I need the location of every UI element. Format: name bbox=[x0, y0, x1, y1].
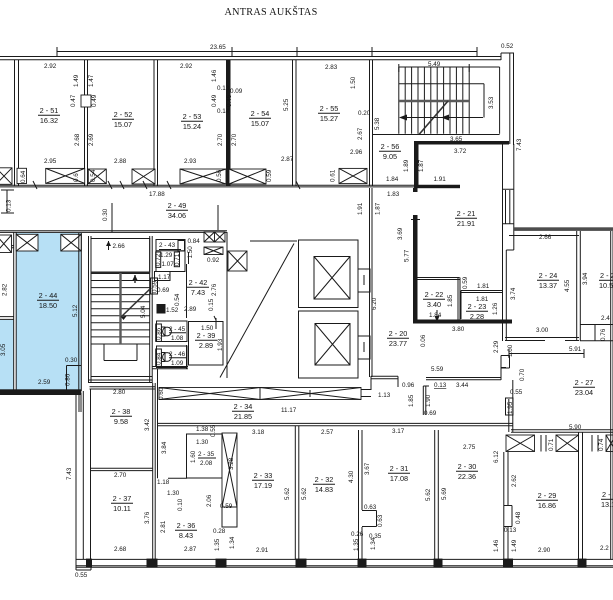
svg-text:0.55: 0.55 bbox=[75, 572, 88, 579]
svg-text:3.40: 3.40 bbox=[427, 300, 441, 309]
svg-text:2.92: 2.92 bbox=[44, 63, 57, 70]
svg-text:16.32: 16.32 bbox=[40, 116, 58, 125]
svg-text:2.66: 2.66 bbox=[539, 234, 552, 241]
svg-text:2 - 38: 2 - 38 bbox=[112, 407, 131, 416]
svg-text:2 - 20: 2 - 20 bbox=[389, 329, 408, 338]
svg-text:1.30: 1.30 bbox=[167, 490, 180, 497]
svg-text:2 - 22: 2 - 22 bbox=[425, 290, 444, 299]
svg-text:0.63: 0.63 bbox=[364, 504, 377, 511]
svg-text:4.30: 4.30 bbox=[348, 470, 355, 483]
svg-text:1.91: 1.91 bbox=[357, 202, 364, 215]
svg-text:0.61: 0.61 bbox=[330, 169, 337, 182]
svg-text:2.70: 2.70 bbox=[217, 133, 224, 146]
svg-text:0.92: 0.92 bbox=[207, 257, 220, 264]
svg-text:5.62: 5.62 bbox=[425, 488, 432, 501]
svg-text:0.6: 0.6 bbox=[73, 173, 80, 182]
svg-text:2.80: 2.80 bbox=[113, 389, 126, 396]
svg-text:3.80: 3.80 bbox=[452, 326, 465, 333]
svg-text:2 - 53: 2 - 53 bbox=[183, 112, 202, 121]
svg-text:1.34: 1.34 bbox=[229, 536, 236, 549]
svg-text:0.64: 0.64 bbox=[20, 170, 27, 183]
svg-text:0.59: 0.59 bbox=[220, 503, 233, 510]
svg-text:0.76: 0.76 bbox=[600, 328, 607, 341]
svg-text:0.30: 0.30 bbox=[102, 208, 109, 221]
svg-text:0.84: 0.84 bbox=[156, 352, 163, 365]
svg-text:0.49: 0.49 bbox=[91, 94, 98, 107]
svg-text:2.70: 2.70 bbox=[231, 133, 238, 146]
svg-text:15.07: 15.07 bbox=[251, 119, 269, 128]
svg-text:1.49: 1.49 bbox=[73, 74, 80, 87]
svg-text:0.06: 0.06 bbox=[420, 334, 427, 347]
svg-text:3.44: 3.44 bbox=[456, 382, 469, 389]
svg-text:2.06: 2.06 bbox=[206, 494, 213, 507]
svg-text:0.14: 0.14 bbox=[217, 108, 230, 115]
svg-text:5.90: 5.90 bbox=[569, 424, 582, 431]
svg-text:3.53: 3.53 bbox=[488, 96, 495, 109]
svg-text:0.96: 0.96 bbox=[402, 382, 415, 389]
svg-text:0.63: 0.63 bbox=[377, 514, 384, 527]
svg-text:4.55: 4.55 bbox=[564, 279, 571, 292]
svg-text:0.59: 0.59 bbox=[462, 276, 469, 289]
svg-text:2 - 24: 2 - 24 bbox=[539, 271, 558, 280]
svg-text:1.09: 1.09 bbox=[171, 360, 184, 367]
svg-text:2.62: 2.62 bbox=[511, 474, 518, 487]
svg-text:2.08: 2.08 bbox=[200, 460, 213, 467]
svg-text:0.13: 0.13 bbox=[434, 382, 447, 389]
svg-text:17.19: 17.19 bbox=[254, 481, 272, 490]
svg-text:0.71: 0.71 bbox=[174, 253, 181, 266]
svg-text:2.96: 2.96 bbox=[350, 149, 363, 156]
svg-text:15.07: 15.07 bbox=[114, 120, 132, 129]
svg-text:2 - 37: 2 - 37 bbox=[113, 494, 132, 503]
svg-text:2 - 30: 2 - 30 bbox=[458, 462, 477, 471]
svg-text:2.66: 2.66 bbox=[113, 243, 126, 250]
svg-text:1.08: 1.08 bbox=[171, 335, 184, 342]
svg-text:0.86: 0.86 bbox=[65, 373, 72, 386]
svg-text:5.38: 5.38 bbox=[374, 117, 381, 130]
svg-text:2 - 36: 2 - 36 bbox=[177, 521, 196, 530]
svg-text:1.93: 1.93 bbox=[217, 338, 224, 351]
svg-text:2.95: 2.95 bbox=[44, 158, 57, 165]
svg-text:2 - 32: 2 - 32 bbox=[315, 475, 334, 484]
svg-text:0.45: 0.45 bbox=[226, 94, 233, 107]
svg-text:0.13: 0.13 bbox=[504, 527, 517, 534]
svg-text:3.18: 3.18 bbox=[252, 429, 265, 436]
svg-text:2.4: 2.4 bbox=[601, 315, 610, 322]
svg-text:1.83: 1.83 bbox=[387, 191, 400, 198]
svg-text:2 - 49: 2 - 49 bbox=[168, 201, 187, 210]
svg-text:3.28: 3.28 bbox=[228, 457, 235, 470]
svg-text:2.87: 2.87 bbox=[184, 546, 197, 553]
svg-text:1.85: 1.85 bbox=[447, 294, 454, 307]
svg-text:0.13: 0.13 bbox=[217, 85, 230, 92]
svg-text:2 - 44: 2 - 44 bbox=[39, 291, 58, 300]
svg-text:34.06: 34.06 bbox=[168, 211, 186, 220]
svg-text:3.76: 3.76 bbox=[144, 511, 151, 524]
svg-text:2 - 33: 2 - 33 bbox=[254, 471, 273, 480]
svg-text:0.69: 0.69 bbox=[157, 287, 170, 294]
svg-text:2 - 42: 2 - 42 bbox=[189, 278, 208, 287]
svg-text:0.26: 0.26 bbox=[351, 531, 364, 538]
svg-text:2 - 35: 2 - 35 bbox=[198, 451, 215, 458]
svg-text:2 - 51: 2 - 51 bbox=[40, 106, 59, 115]
svg-text:7.43: 7.43 bbox=[516, 138, 523, 151]
svg-text:1.90: 1.90 bbox=[425, 394, 432, 407]
svg-text:2 - 43: 2 - 43 bbox=[159, 242, 176, 249]
svg-text:3.67: 3.67 bbox=[364, 462, 371, 475]
svg-text:0.69: 0.69 bbox=[424, 410, 437, 417]
svg-text:1.18: 1.18 bbox=[157, 479, 170, 486]
svg-text:2 - 54: 2 - 54 bbox=[251, 109, 270, 118]
svg-text:21.91: 21.91 bbox=[457, 219, 475, 228]
svg-text:5.25: 5.25 bbox=[283, 98, 290, 111]
svg-text:1.38: 1.38 bbox=[196, 426, 209, 433]
svg-text:3.84: 3.84 bbox=[161, 441, 168, 454]
svg-text:2.68: 2.68 bbox=[114, 546, 127, 553]
svg-text:0.15: 0.15 bbox=[208, 298, 215, 311]
svg-text:2.83: 2.83 bbox=[325, 64, 338, 71]
svg-text:2.92: 2.92 bbox=[180, 63, 193, 70]
svg-text:0.56: 0.56 bbox=[216, 169, 223, 182]
svg-text:2.93: 2.93 bbox=[184, 158, 197, 165]
svg-text:0.74: 0.74 bbox=[598, 438, 605, 451]
svg-text:2 - 39: 2 - 39 bbox=[197, 331, 216, 340]
svg-text:13.37: 13.37 bbox=[539, 281, 557, 290]
svg-text:3.69: 3.69 bbox=[397, 227, 404, 240]
svg-text:3.94: 3.94 bbox=[582, 272, 589, 285]
svg-text:1.60: 1.60 bbox=[190, 450, 197, 463]
svg-text:3.72: 3.72 bbox=[454, 148, 467, 155]
svg-text:2.90: 2.90 bbox=[538, 547, 551, 554]
svg-text:1.52: 1.52 bbox=[166, 307, 179, 314]
svg-text:3.00: 3.00 bbox=[536, 327, 549, 334]
svg-text:0.09: 0.09 bbox=[230, 88, 243, 95]
svg-text:9.58: 9.58 bbox=[114, 417, 128, 426]
svg-text:1.87: 1.87 bbox=[375, 202, 382, 215]
svg-text:10.11: 10.11 bbox=[113, 504, 131, 513]
svg-text:2.76: 2.76 bbox=[211, 283, 218, 296]
svg-text:15.27: 15.27 bbox=[320, 114, 338, 123]
svg-text:2.82: 2.82 bbox=[2, 283, 9, 296]
svg-text:3.42: 3.42 bbox=[144, 418, 151, 431]
svg-text:0.71: 0.71 bbox=[548, 438, 555, 451]
svg-text:1.34: 1.34 bbox=[370, 537, 377, 550]
svg-text:2.2: 2.2 bbox=[600, 545, 609, 552]
svg-text:0.59: 0.59 bbox=[266, 169, 273, 182]
svg-text:0.10: 0.10 bbox=[177, 498, 184, 511]
svg-text:1.07: 1.07 bbox=[162, 261, 175, 268]
svg-text:2 - 2: 2 - 2 bbox=[602, 490, 613, 499]
svg-text:2.70: 2.70 bbox=[114, 472, 127, 479]
svg-text:2.87: 2.87 bbox=[281, 156, 294, 163]
svg-text:2.89: 2.89 bbox=[184, 306, 197, 313]
svg-text:2.67: 2.67 bbox=[357, 127, 364, 140]
svg-text:5.77: 5.77 bbox=[404, 249, 411, 262]
svg-text:0.54: 0.54 bbox=[90, 169, 97, 182]
svg-text:2.57: 2.57 bbox=[321, 429, 334, 436]
svg-text:0.49: 0.49 bbox=[211, 94, 218, 107]
svg-text:5.62: 5.62 bbox=[284, 487, 291, 500]
svg-text:23.77: 23.77 bbox=[389, 339, 407, 348]
svg-text:0.84: 0.84 bbox=[188, 238, 201, 245]
svg-text:1.47: 1.47 bbox=[88, 74, 95, 87]
svg-text:1.89: 1.89 bbox=[403, 159, 410, 172]
svg-text:1.35: 1.35 bbox=[214, 538, 221, 551]
svg-text:2.89: 2.89 bbox=[199, 341, 213, 350]
svg-text:7.43: 7.43 bbox=[66, 467, 73, 480]
svg-text:14.83: 14.83 bbox=[315, 485, 333, 494]
svg-text:0.28: 0.28 bbox=[213, 528, 226, 535]
svg-text:0.54: 0.54 bbox=[174, 293, 181, 306]
svg-text:17.08: 17.08 bbox=[390, 474, 408, 483]
svg-text:1.46: 1.46 bbox=[211, 69, 218, 82]
svg-text:2 - 29: 2 - 29 bbox=[538, 491, 557, 500]
svg-text:17.88: 17.88 bbox=[149, 191, 165, 198]
svg-text:0.13: 0.13 bbox=[6, 199, 13, 212]
svg-text:2 - 56: 2 - 56 bbox=[381, 142, 400, 151]
svg-text:3.74: 3.74 bbox=[510, 287, 517, 300]
svg-text:0.20: 0.20 bbox=[358, 110, 371, 117]
svg-text:6.12: 6.12 bbox=[493, 450, 500, 463]
svg-text:11.17: 11.17 bbox=[281, 407, 297, 414]
svg-text:1.87: 1.87 bbox=[418, 159, 425, 172]
svg-text:1.50: 1.50 bbox=[350, 76, 357, 89]
svg-text:0.30: 0.30 bbox=[65, 357, 78, 364]
svg-text:23.04: 23.04 bbox=[575, 388, 593, 397]
svg-text:5.04: 5.04 bbox=[140, 305, 147, 318]
svg-text:2.69: 2.69 bbox=[88, 133, 95, 146]
svg-text:2.75: 2.75 bbox=[463, 444, 476, 451]
svg-text:3.05: 3.05 bbox=[0, 343, 7, 356]
svg-text:2.91: 2.91 bbox=[256, 547, 269, 554]
svg-text:0.86: 0.86 bbox=[156, 327, 163, 340]
svg-text:0.47: 0.47 bbox=[70, 94, 77, 107]
svg-text:2.88: 2.88 bbox=[114, 158, 127, 165]
svg-text:0.55: 0.55 bbox=[210, 424, 217, 437]
svg-text:15.24: 15.24 bbox=[183, 122, 201, 131]
svg-text:2 - 52: 2 - 52 bbox=[114, 110, 133, 119]
svg-text:2 - 31: 2 - 31 bbox=[390, 464, 409, 473]
svg-text:ANTRAS AUKŠTAS: ANTRAS AUKŠTAS bbox=[224, 6, 317, 18]
svg-text:23.65: 23.65 bbox=[210, 44, 226, 51]
svg-text:9.05: 9.05 bbox=[383, 152, 397, 161]
svg-text:2 - 34: 2 - 34 bbox=[234, 402, 253, 411]
svg-text:1.91: 1.91 bbox=[434, 176, 447, 183]
svg-text:2 - 21: 2 - 21 bbox=[457, 209, 476, 218]
svg-text:21.85: 21.85 bbox=[234, 412, 252, 421]
svg-text:0.55: 0.55 bbox=[510, 389, 523, 396]
svg-text:2 - 23: 2 - 23 bbox=[468, 302, 487, 311]
svg-text:0.60: 0.60 bbox=[158, 387, 165, 400]
svg-text:2.59: 2.59 bbox=[38, 379, 51, 386]
svg-text:1.13: 1.13 bbox=[378, 392, 391, 399]
svg-text:3.17: 3.17 bbox=[392, 428, 405, 435]
svg-text:1.85: 1.85 bbox=[408, 394, 415, 407]
svg-text:1.46: 1.46 bbox=[493, 539, 500, 552]
svg-text:2.29: 2.29 bbox=[493, 340, 500, 353]
svg-text:2 - 27: 2 - 27 bbox=[575, 378, 594, 387]
svg-text:5.62: 5.62 bbox=[301, 487, 308, 500]
svg-text:16.86: 16.86 bbox=[538, 501, 556, 510]
svg-text:1.35: 1.35 bbox=[353, 538, 360, 551]
svg-text:5.59: 5.59 bbox=[431, 366, 444, 373]
svg-text:5.69: 5.69 bbox=[441, 487, 448, 500]
svg-text:7.43: 7.43 bbox=[191, 288, 205, 297]
svg-text:8.43: 8.43 bbox=[179, 531, 193, 540]
svg-text:5.12: 5.12 bbox=[72, 304, 79, 317]
svg-text:0.70: 0.70 bbox=[519, 368, 526, 381]
svg-text:2.81: 2.81 bbox=[160, 520, 167, 533]
svg-text:1.84: 1.84 bbox=[386, 176, 399, 183]
svg-text:0.52: 0.52 bbox=[501, 43, 514, 50]
svg-text:2.68: 2.68 bbox=[74, 133, 81, 146]
svg-text:22.36: 22.36 bbox=[458, 472, 476, 481]
svg-text:0.48: 0.48 bbox=[515, 511, 522, 524]
svg-text:1.30: 1.30 bbox=[196, 439, 209, 446]
svg-text:1.81: 1.81 bbox=[477, 283, 490, 290]
svg-text:2 - 55: 2 - 55 bbox=[320, 104, 339, 113]
svg-text:1.17: 1.17 bbox=[158, 274, 171, 281]
svg-text:18.50: 18.50 bbox=[39, 301, 57, 310]
svg-text:5.91: 5.91 bbox=[569, 346, 582, 353]
svg-text:1.26: 1.26 bbox=[492, 302, 499, 315]
svg-text:1.49: 1.49 bbox=[511, 539, 518, 552]
